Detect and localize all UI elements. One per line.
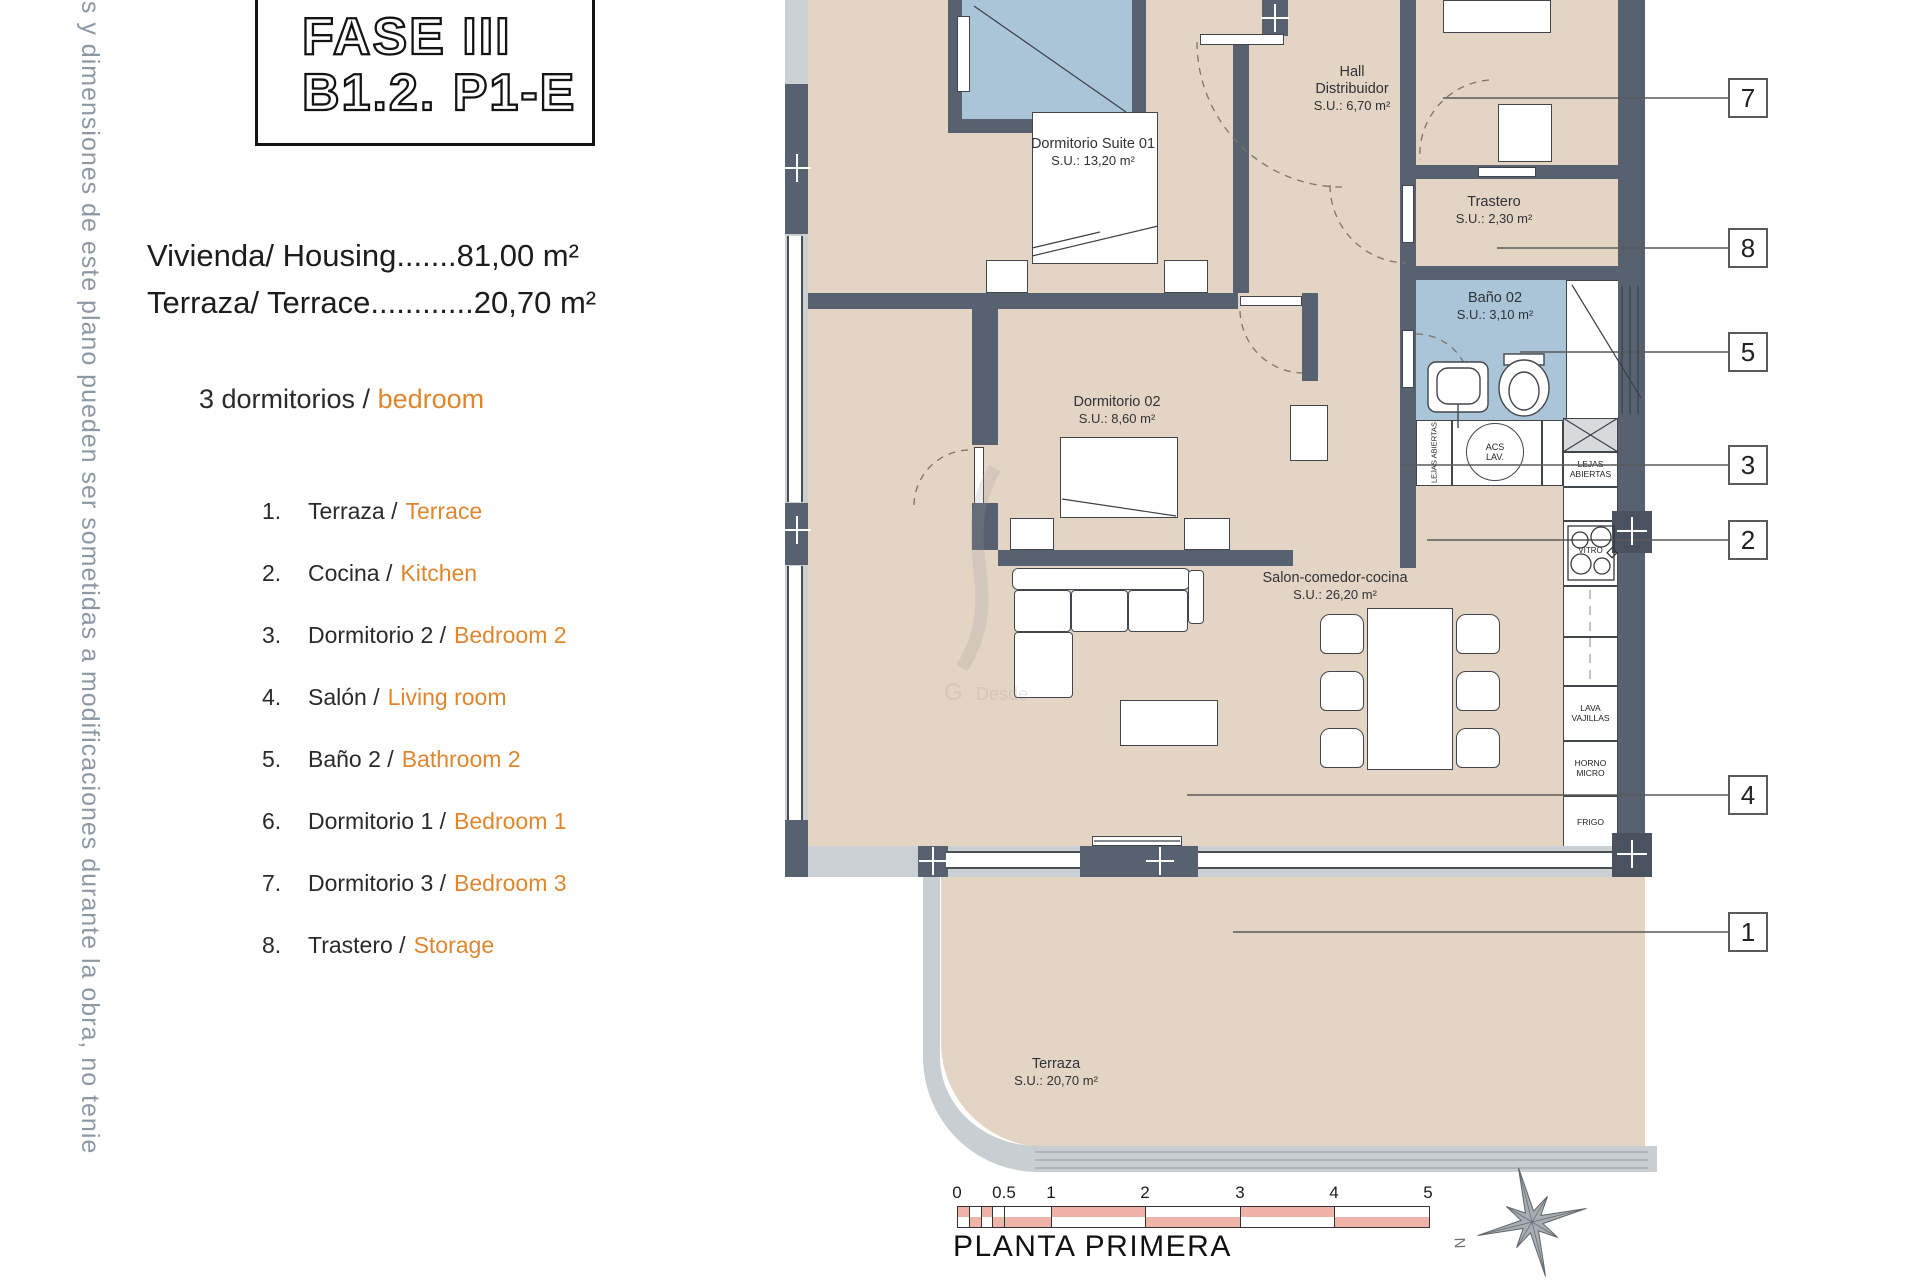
door-leaf [974, 447, 984, 505]
counter-cell [1542, 420, 1563, 486]
label-salon: Salon-comedor-cocina S.U.: 26,20 m² [1240, 570, 1430, 603]
window [946, 851, 1080, 869]
callout-1: 1 [1728, 912, 1768, 952]
bed-dorm02 [1060, 437, 1178, 518]
right-wall [1618, 0, 1645, 877]
legend-item-5: 5.Baño 2 /Bathroom 2 [262, 746, 567, 808]
sofa-back [1012, 568, 1190, 590]
legend-item-7: 7.Dormitorio 3 /Bedroom 3 [262, 870, 567, 932]
phase-title: FASE III [302, 9, 592, 65]
window [1198, 851, 1618, 869]
chair [1320, 614, 1364, 654]
plan-title: PLANTA PRIMERA [953, 1230, 1232, 1264]
sofa-seat [1128, 590, 1188, 632]
area-summary: Vivienda/ Housing.......81,00 m² Terraza… [147, 232, 596, 326]
fridge-cell: FRIGO [1563, 796, 1618, 850]
left-wall-pillar [785, 503, 808, 565]
dishwasher-cell: LAVA VAJILLAS [1563, 686, 1618, 741]
sofa-seat [1071, 590, 1128, 632]
chair [1456, 671, 1500, 711]
entrance-door-leaf [1200, 34, 1284, 45]
left-wall-pillar [785, 820, 808, 877]
kitchen-counter-cell [1563, 487, 1618, 521]
structural-column [1612, 511, 1652, 553]
salon-north-wall [998, 550, 1293, 566]
nightstand [986, 260, 1028, 293]
suite01-south-wall [808, 293, 1238, 309]
oven-cell: HORNO MICRO [1563, 741, 1618, 796]
shelves-cell: LEJAS ABIERTAS [1416, 420, 1452, 486]
legend-item-1: 1.Terraza /Terrace [262, 498, 567, 560]
legend-item-3: 3.Dormitorio 2 /Bedroom 2 [262, 622, 567, 684]
tv-unit [1120, 700, 1218, 746]
kitchen-counter-cell [1563, 586, 1618, 637]
wall-pier [972, 503, 998, 550]
scale-bar [957, 1206, 1430, 1228]
kitchen-hatch-cell [1563, 418, 1618, 452]
vitro-label: VITRO [1563, 546, 1618, 555]
kitchen-shelves-cell: LEJAS ABIERTAS [1563, 452, 1618, 487]
south-wall-pillar [918, 846, 948, 877]
sofa-seat [1014, 590, 1071, 632]
chair [1320, 728, 1364, 768]
acs-boiler-circle: ACS LAV. [1466, 423, 1524, 481]
chair [1456, 728, 1500, 768]
scale-tick: 0 [935, 1183, 979, 1203]
terrace-rail [923, 877, 1657, 1172]
scale-tick: 2 [1123, 1183, 1167, 1203]
bedrooms-en: bedroom [378, 384, 485, 414]
label-dorm02: Dormitorio 02 S.U.: 8,60 m² [1047, 394, 1187, 427]
legend-item-6: 6.Dormitorio 1 /Bedroom 1 [262, 808, 567, 870]
window [787, 566, 803, 820]
unit-title: B1.2. P1-E [302, 65, 592, 121]
callout-8: 8 [1728, 228, 1768, 268]
door-leaf [1240, 296, 1302, 306]
callout-2: 2 [1728, 520, 1768, 560]
bed-suite01 [1032, 112, 1158, 264]
hall-east-wall [1400, 0, 1416, 568]
dining-table [1367, 608, 1453, 770]
window [787, 236, 803, 502]
label-bano02: Baño 02 S.U.: 3,10 m² [1433, 290, 1557, 323]
legend-item-8: 8.Trastero /Storage [262, 932, 567, 994]
legend-item-4: 4.Salón /Living room [262, 684, 567, 746]
room-legend: 1.Terraza /Terrace 2.Cocina /Kitchen 3.D… [262, 498, 567, 994]
housing-area: Vivienda/ Housing.......81,00 m² [147, 232, 596, 279]
label-suite01: Dormitorio Suite 01 S.U.: 13,20 m² [1013, 136, 1173, 169]
bed-dorm3 [1443, 0, 1551, 33]
scale-tick: 4 [1312, 1183, 1356, 1203]
chair [1320, 671, 1364, 711]
scale-tick: 5 [1406, 1183, 1450, 1203]
side-disclaimer-text: es y dimensiones de este plano pueden se… [60, 0, 104, 1280]
door-leaf [1402, 185, 1414, 243]
hall-west-wall [1233, 40, 1249, 293]
left-wall-pillar [785, 84, 808, 234]
entrance-jamb [1262, 0, 1288, 36]
callout-4: 4 [1728, 775, 1768, 815]
dorm02-west-wall [972, 309, 998, 445]
kitchen-counter-cell [1563, 637, 1618, 686]
callout-3: 3 [1728, 445, 1768, 485]
bedrooms-es: 3 dormitorios / [199, 384, 370, 414]
closet [1290, 405, 1328, 461]
wall-stub [1302, 293, 1318, 381]
bedrooms-line: 3 dormitorios / bedroom [199, 384, 484, 415]
chair [1456, 614, 1500, 654]
compass-north-label: N [1452, 1237, 1469, 1248]
callout-7: 7 [1728, 78, 1768, 118]
scale-tick: 3 [1218, 1183, 1262, 1203]
label-terraza: Terraza S.U.: 20,70 m² [986, 1056, 1126, 1089]
door-leaf [957, 16, 970, 92]
floorplan-page: es y dimensiones de este plano pueden se… [0, 0, 1920, 1280]
nightstand [1164, 260, 1208, 293]
slider-door-pane [1092, 836, 1182, 846]
terrace-area: Terraza/ Terrace............20,70 m² [147, 279, 596, 326]
scale-tick: 0.5 [982, 1183, 1026, 1203]
nightstand [1010, 518, 1054, 550]
compass-icon: N [1437, 1154, 1600, 1280]
label-hall: Hall Distribuidor S.U.: 6,70 m² [1304, 64, 1400, 114]
legend-item-2: 2.Cocina /Kitchen [262, 560, 567, 622]
label-trastero: Trastero S.U.: 2,30 m² [1432, 194, 1556, 227]
title-box: FASE III B1.2. P1-E [255, 0, 595, 146]
door-leaf [1478, 167, 1536, 177]
bathroom1-floor [962, 0, 1132, 119]
trastero-south-wall [1416, 266, 1645, 280]
nightstand [1184, 518, 1230, 550]
sofa-chaise [1014, 632, 1073, 698]
sofa-armrest [1188, 570, 1204, 624]
callout-5: 5 [1728, 332, 1768, 372]
scale-tick: 1 [1029, 1183, 1073, 1203]
door-leaf [1402, 330, 1414, 388]
wardrobe-dorm3 [1498, 104, 1552, 162]
slider-door-frame [1080, 846, 1198, 877]
structural-column [1612, 833, 1652, 877]
